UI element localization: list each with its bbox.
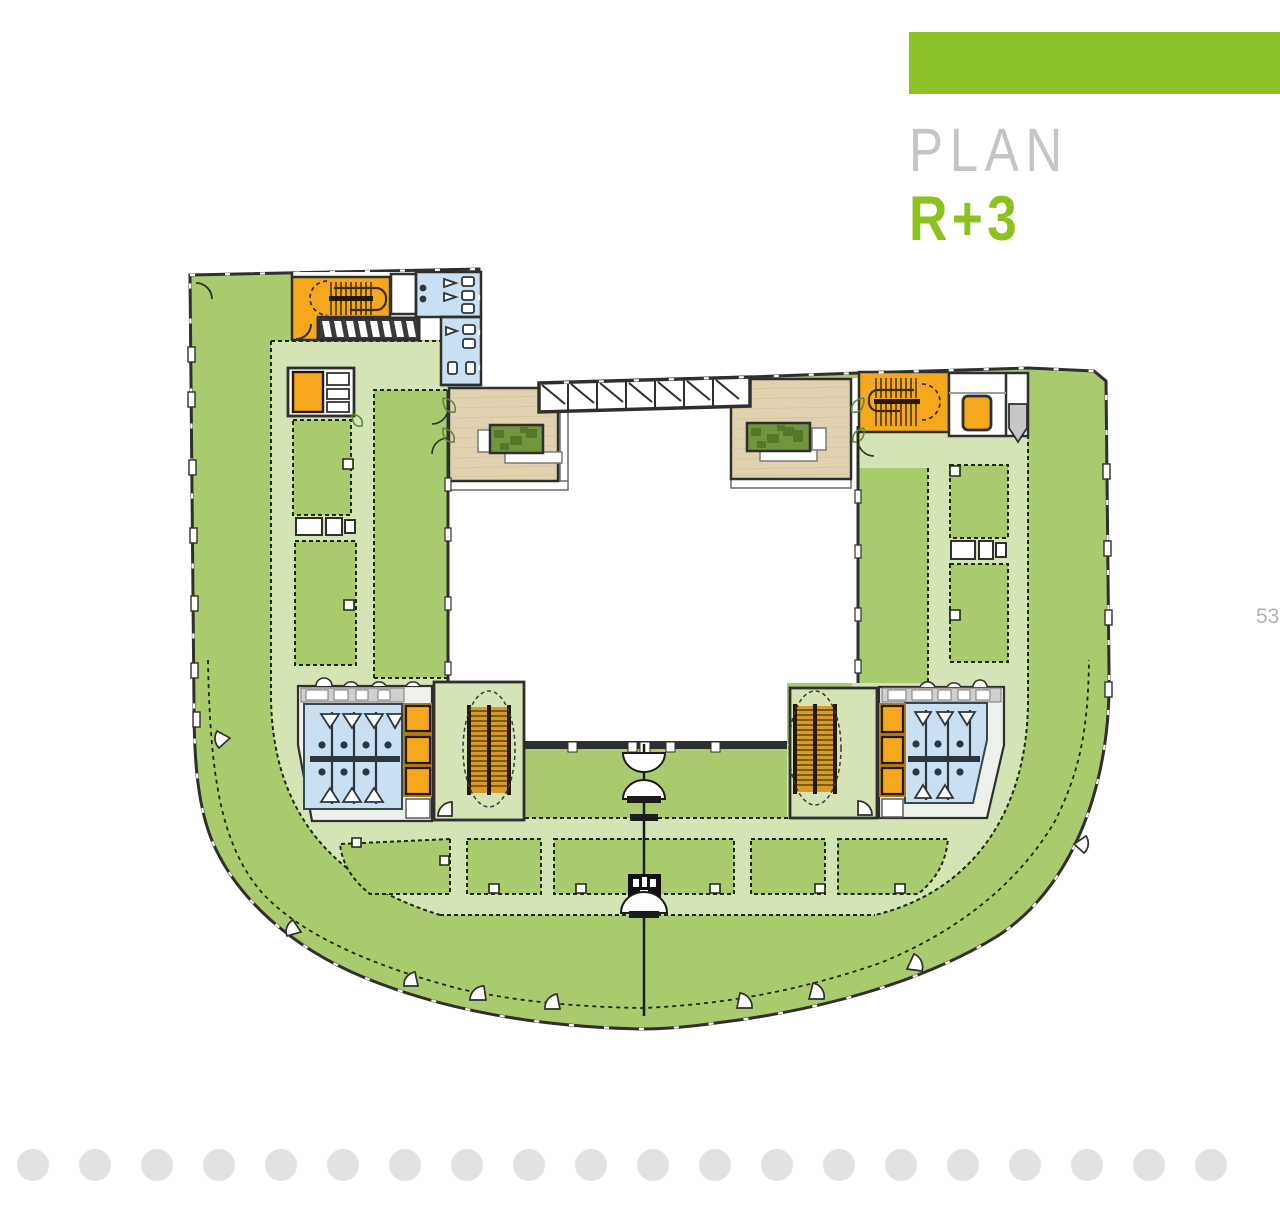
svg-text:PLAN: PLAN: [909, 116, 1069, 184]
svg-text:53: 53: [1256, 605, 1279, 628]
svg-text:R+3: R+3: [909, 184, 1021, 254]
